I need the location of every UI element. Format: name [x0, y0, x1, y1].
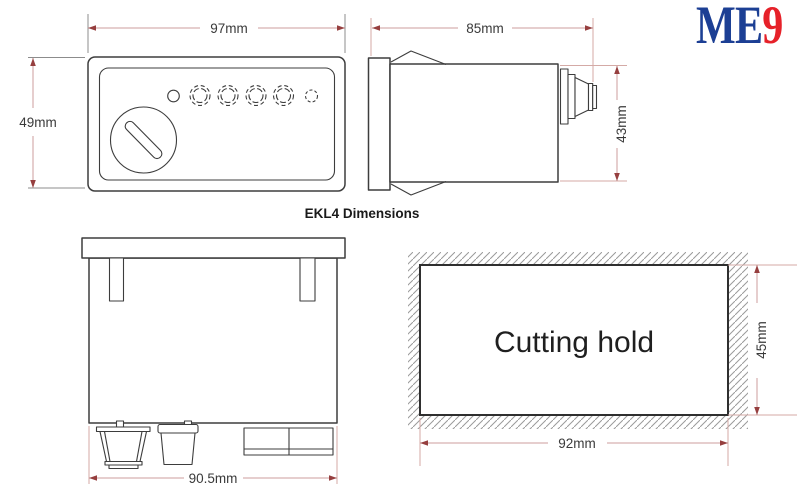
clip-tab [110, 258, 124, 301]
clip-tab [300, 258, 315, 301]
side-view: 85mm 43mm [369, 18, 630, 195]
cable-gland [97, 421, 151, 469]
side-height-label: 43mm [614, 105, 629, 143]
front-bezel-flange [82, 238, 345, 258]
side-width-label: 85mm [466, 21, 504, 36]
cutout-view: Cutting hold 45mm 92mm [408, 252, 797, 466]
brand-logo: ME9 [696, 0, 783, 50]
front-panel-outer [88, 57, 345, 191]
ekl4-dimension-sheet: 97mm 49mm [0, 0, 800, 490]
cable-gland [158, 421, 198, 465]
terminal-block [244, 428, 333, 455]
front-height-label: 49mm [19, 115, 57, 130]
mounting-clip-bottom [391, 182, 446, 196]
page-title: EKL4 Dimensions [252, 206, 472, 221]
front-height-dimension: 49mm [19, 58, 85, 189]
rear-width-label: 90.5mm [189, 471, 238, 486]
cutout-width-label: 92mm [558, 436, 596, 451]
front-width-dimension: 97mm [88, 14, 345, 53]
front-width-label: 97mm [210, 21, 248, 36]
rear-view: 90.5mm [82, 238, 345, 486]
rear-connector [561, 69, 597, 124]
brand-logo-9: 9 [762, 0, 782, 55]
technical-drawing: 97mm 49mm [0, 0, 800, 490]
front-view: 97mm 49mm [19, 14, 345, 191]
front-bezel [369, 58, 391, 190]
mounting-clip-top [391, 51, 446, 65]
cutout-height-label: 45mm [754, 321, 769, 359]
housing-body [390, 64, 558, 182]
cutout-label: Cutting hold [494, 326, 654, 359]
brand-logo-me: ME [696, 0, 762, 55]
